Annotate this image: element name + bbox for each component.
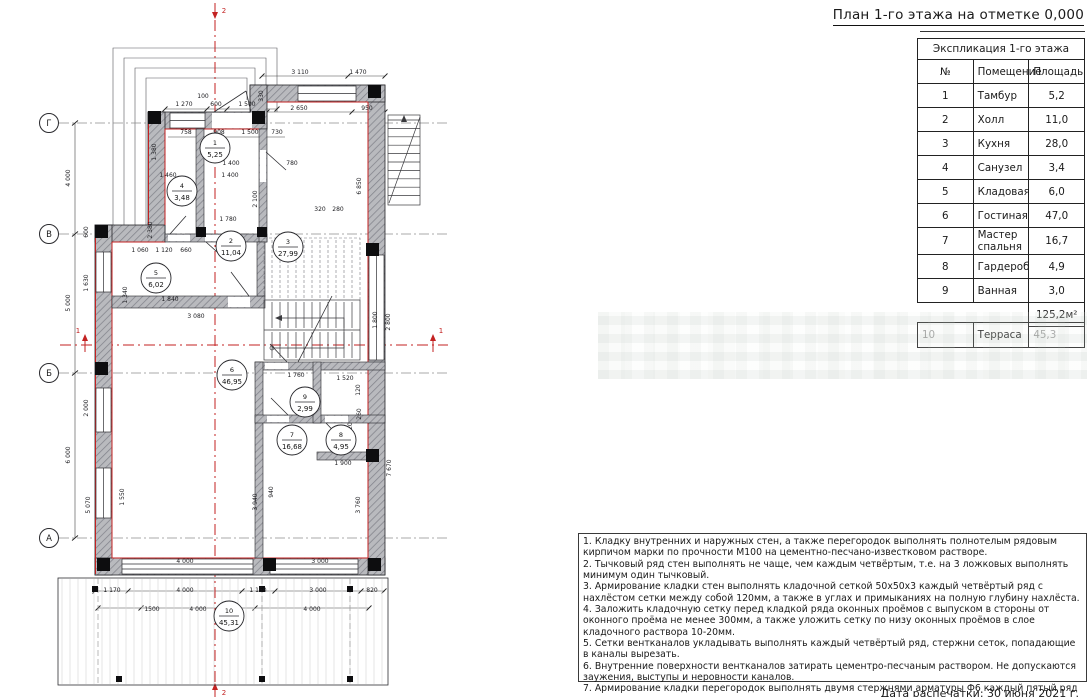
dimension-label: 3 110: [291, 69, 308, 76]
section-marker-label: 2: [222, 689, 226, 697]
title-rule: [920, 31, 1085, 32]
survey-point: [347, 586, 353, 592]
dimension-label: 600: [210, 101, 222, 108]
pier-square: [257, 227, 267, 237]
dimension-label: 758: [180, 129, 192, 136]
row-area: 5,2: [1029, 84, 1085, 108]
axis-letter: А: [46, 534, 52, 544]
dimension-label: 1 340: [122, 286, 129, 303]
table-row: 3Кухня28,0: [918, 132, 1085, 156]
row-name: Кухня: [973, 132, 1029, 156]
room-number: 9: [303, 393, 307, 401]
row-area: 16,7: [1029, 228, 1085, 255]
survey-point: [116, 676, 122, 682]
column-header-area: Площадь: [1029, 60, 1085, 84]
dimension-label: 3 760: [355, 496, 362, 513]
dimension-label: 260: [356, 408, 363, 420]
explication-caption: Экспликация 1-го этажа: [918, 39, 1085, 60]
section-marker-label: 1: [439, 327, 443, 335]
dimension-label: 7 670: [386, 459, 393, 476]
room-number: 10: [225, 607, 233, 615]
dimension-label: 940: [268, 486, 275, 498]
dimension-label: 1 780: [219, 216, 236, 223]
room-area: 11,04: [221, 249, 242, 257]
room-number: 2: [229, 237, 233, 245]
construction-notes: 1. Кладку внутренних и наружных стен, а …: [578, 533, 1087, 682]
dimension-label: 4 000: [176, 558, 193, 565]
dimension-label: 1 500: [238, 101, 255, 108]
dimension-label: 1 400: [222, 160, 239, 167]
dimension-label: 1 120: [155, 247, 172, 254]
pier-square: [95, 225, 108, 238]
dimension-label: 2 800: [385, 313, 392, 330]
sheet-title: План 1-го этажа на отметке 0,000: [833, 7, 1084, 26]
dimension-label: 1 400: [221, 172, 238, 179]
section-marker-label: 2: [222, 7, 226, 15]
blurred-watermark: [598, 312, 1087, 379]
row-area: 28,0: [1029, 132, 1085, 156]
dimension-label: 5 000: [65, 294, 72, 311]
dimension-label: 1 270: [175, 101, 192, 108]
dimension-label: 4 000: [189, 606, 206, 613]
pier-square: [148, 111, 161, 124]
row-area: 3,4: [1029, 156, 1085, 180]
dimension-label: 4 000: [303, 606, 320, 613]
room-number: 4: [180, 182, 184, 190]
row-area: 47,0: [1029, 204, 1085, 228]
room-area: 27,99: [278, 250, 298, 258]
dimension-label: 120: [355, 384, 362, 396]
row-name: Санузел: [973, 156, 1029, 180]
drawing-sheet: ГВБА 3 1101 4702 6509501 2706001 5001003…: [0, 0, 1087, 697]
dimension-label: 320: [314, 206, 326, 213]
pier-square: [366, 243, 379, 256]
table-row: 8Гардероб4,9: [918, 255, 1085, 279]
pier-square: [97, 558, 110, 571]
note-line: 2. Тычковый ряд стен выполнять не чаще, …: [583, 559, 1082, 582]
floor-plan-drawing: ГВБА 3 1101 4702 6509501 2706001 5001003…: [0, 0, 460, 697]
row-name: Гостиная: [973, 204, 1029, 228]
dimension-label: 2 380: [147, 221, 154, 238]
dimension-label: 1500: [144, 606, 159, 613]
dimension-label: 1 550: [119, 488, 126, 505]
column-header-name: Помещение: [973, 60, 1029, 84]
dimension-label: 660: [180, 247, 192, 254]
pier-square: [95, 362, 108, 375]
note-line: 6. Внутренние поверхности вентканалов за…: [583, 661, 1082, 684]
table-row: 9Ванная3,0: [918, 279, 1085, 303]
room-area: 2,99: [297, 405, 313, 413]
print-date: Дата распечатки: 30 июня 2021 г.: [881, 687, 1079, 697]
room-number: 3: [286, 238, 290, 246]
pier-square: [366, 449, 379, 462]
row-name: Гардероб: [973, 255, 1029, 279]
dimension-chains: [72, 74, 388, 611]
pier-square: [368, 558, 381, 571]
table-row: 1Тамбур5,2: [918, 84, 1085, 108]
external-stair: [388, 115, 420, 205]
pier-square: [263, 558, 276, 571]
row-area: 6,0: [1029, 180, 1085, 204]
axis-letter: Г: [46, 119, 51, 129]
row-area: 3,0: [1029, 279, 1085, 303]
dimension-label: 280: [332, 206, 344, 213]
dimension-label: 730: [271, 129, 283, 136]
room-number: 7: [290, 431, 294, 439]
row-name: Мастер спальня: [973, 228, 1029, 255]
dimension-label: 6 850: [356, 177, 363, 194]
row-num: 5: [918, 180, 974, 204]
dimension-label: 780: [286, 160, 298, 167]
canopy-outline: [113, 48, 277, 240]
dimension-label: 6 000: [65, 446, 72, 463]
row-num: 4: [918, 156, 974, 180]
room-area: 45,31: [219, 619, 239, 627]
axis-letter: Б: [46, 369, 52, 379]
row-area: 11,0: [1029, 108, 1085, 132]
pier-square: [368, 85, 381, 98]
room-number: 1: [213, 139, 217, 147]
row-num: 2: [918, 108, 974, 132]
survey-point: [347, 676, 353, 682]
dimension-label: 1 760: [287, 372, 304, 379]
room-area: 3,48: [174, 194, 190, 202]
row-num: 1: [918, 84, 974, 108]
room-area: 16,68: [282, 443, 302, 451]
dimension-label: 1 900: [334, 460, 351, 467]
dimension-label: 820: [366, 587, 378, 594]
table-row: 6Гостиная47,0: [918, 204, 1085, 228]
pier-square: [196, 227, 206, 237]
dimension-label: 2 000: [83, 399, 90, 416]
dimension-label: 1 150: [249, 587, 266, 594]
row-name: Тамбур: [973, 84, 1029, 108]
dimension-label: 1 630: [83, 274, 90, 291]
room-area: 5,25: [207, 151, 223, 159]
table-row: 4Санузел3,4: [918, 156, 1085, 180]
note-line: 4. Заложить кладочную сетку перед кладко…: [583, 604, 1082, 638]
section-marker-label: 1: [76, 327, 80, 335]
table-row: 5Кладовая6,0: [918, 180, 1085, 204]
terrace: [58, 578, 388, 686]
dimension-label: 1 500: [241, 129, 258, 136]
axis-bubbles: ГВБА: [40, 114, 59, 548]
table-row: 7Мастер спальня16,7: [918, 228, 1085, 255]
room-number: 8: [339, 431, 343, 439]
survey-point: [259, 676, 265, 682]
dimension-label: 3 000: [311, 558, 328, 565]
dimension-label: 3 000: [309, 587, 326, 594]
room-number: 5: [154, 269, 158, 277]
dimension-label: 4 000: [176, 587, 193, 594]
dimension-label: 1 520: [336, 375, 353, 382]
dimension-label: 4 000: [65, 169, 72, 186]
note-line: 3. Армирование кладки стен выполнять кла…: [583, 581, 1082, 604]
note-line: 5. Сетки вентканалов укладывать выполнят…: [583, 638, 1082, 661]
row-num: 8: [918, 255, 974, 279]
dimension-label: 2 100: [252, 190, 259, 207]
dimension-label: 1 840: [161, 296, 178, 303]
dimension-label: 5 070: [85, 496, 92, 513]
row-num: 9: [918, 279, 974, 303]
row-name: Кладовая: [973, 180, 1029, 204]
room-area: 46,95: [222, 378, 242, 386]
note-line: 1. Кладку внутренних и наружных стен, а …: [583, 536, 1082, 559]
columns: [95, 85, 381, 571]
axis-letter: В: [46, 230, 52, 240]
room-number: 6: [230, 366, 234, 374]
dimension-label: 100: [197, 93, 209, 100]
room-area: 6,02: [148, 281, 164, 289]
row-num: 6: [918, 204, 974, 228]
dimension-label: 1 800: [372, 311, 379, 328]
dimension-label: 950: [361, 105, 373, 112]
dimension-label: 1 380: [151, 143, 158, 160]
dimension-label: 1 470: [349, 69, 366, 76]
table-row: 2Холл11,0: [918, 108, 1085, 132]
dimension-label: 1 170: [103, 587, 120, 594]
room-area: 4,95: [333, 443, 349, 451]
row-num: 3: [918, 132, 974, 156]
column-header-num: №: [918, 60, 974, 84]
dimension-label: 1 060: [131, 247, 148, 254]
row-name: Ванная: [973, 279, 1029, 303]
survey-point: [92, 586, 98, 592]
row-num: 7: [918, 228, 974, 255]
dimension-label: 2 650: [290, 105, 307, 112]
dimension-label: 3 940: [252, 493, 259, 510]
dimension-label: 3 080: [187, 313, 204, 320]
row-name: Холл: [973, 108, 1029, 132]
pier-square: [252, 111, 265, 124]
row-area: 4,9: [1029, 255, 1085, 279]
dimension-label: 330: [258, 90, 265, 102]
dimension-label: 600: [83, 226, 90, 238]
explication-table: Экспликация 1-го этажа № Помещение Площа…: [917, 38, 1085, 327]
